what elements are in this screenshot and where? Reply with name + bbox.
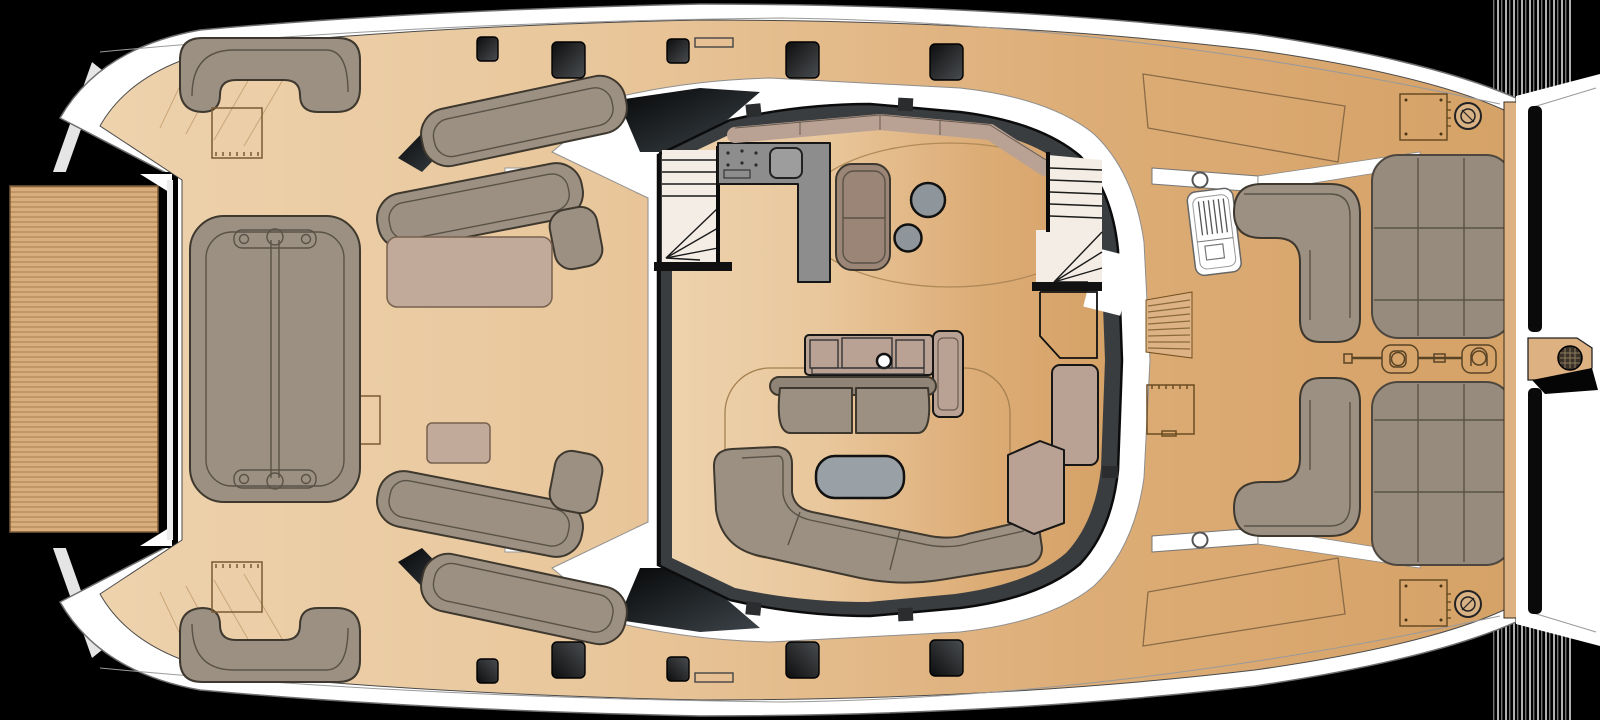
- forward-crossbeam: [167, 180, 173, 540]
- catamaran-deck-plan: [0, 0, 1600, 720]
- salon-lounge-chair: [836, 164, 890, 270]
- deck-hatch: [477, 37, 498, 61]
- transom-shadow-starboard: [1528, 388, 1542, 614]
- pouf-small: [895, 225, 922, 252]
- trampoline-net: [10, 186, 158, 532]
- salon-sofa-forward: [770, 377, 936, 433]
- sun-pad-port: [387, 237, 552, 307]
- coffee-table: [816, 456, 904, 498]
- helm-console: [1186, 187, 1242, 276]
- deck-hatch: [667, 39, 689, 63]
- deck-plan-drawing: [0, 0, 1600, 720]
- console-knob: [877, 354, 891, 368]
- deck-hatch: [786, 42, 819, 78]
- transom-shadow-port: [1528, 106, 1542, 332]
- deck-hatch: [552, 42, 585, 78]
- foredeck-double-lounger: [190, 216, 360, 502]
- sun-pad-starboard: [427, 423, 490, 463]
- deck-hatch: [930, 44, 963, 80]
- stern-transom: [1504, 74, 1600, 646]
- stern-sunpad-starboard: [1372, 382, 1512, 565]
- galley-sink: [770, 148, 802, 178]
- bow-trampoline: [0, 172, 178, 548]
- cockpit-ladder: [1146, 292, 1192, 358]
- stern-sunpad-port: [1372, 155, 1512, 338]
- pouf-large: [911, 183, 945, 217]
